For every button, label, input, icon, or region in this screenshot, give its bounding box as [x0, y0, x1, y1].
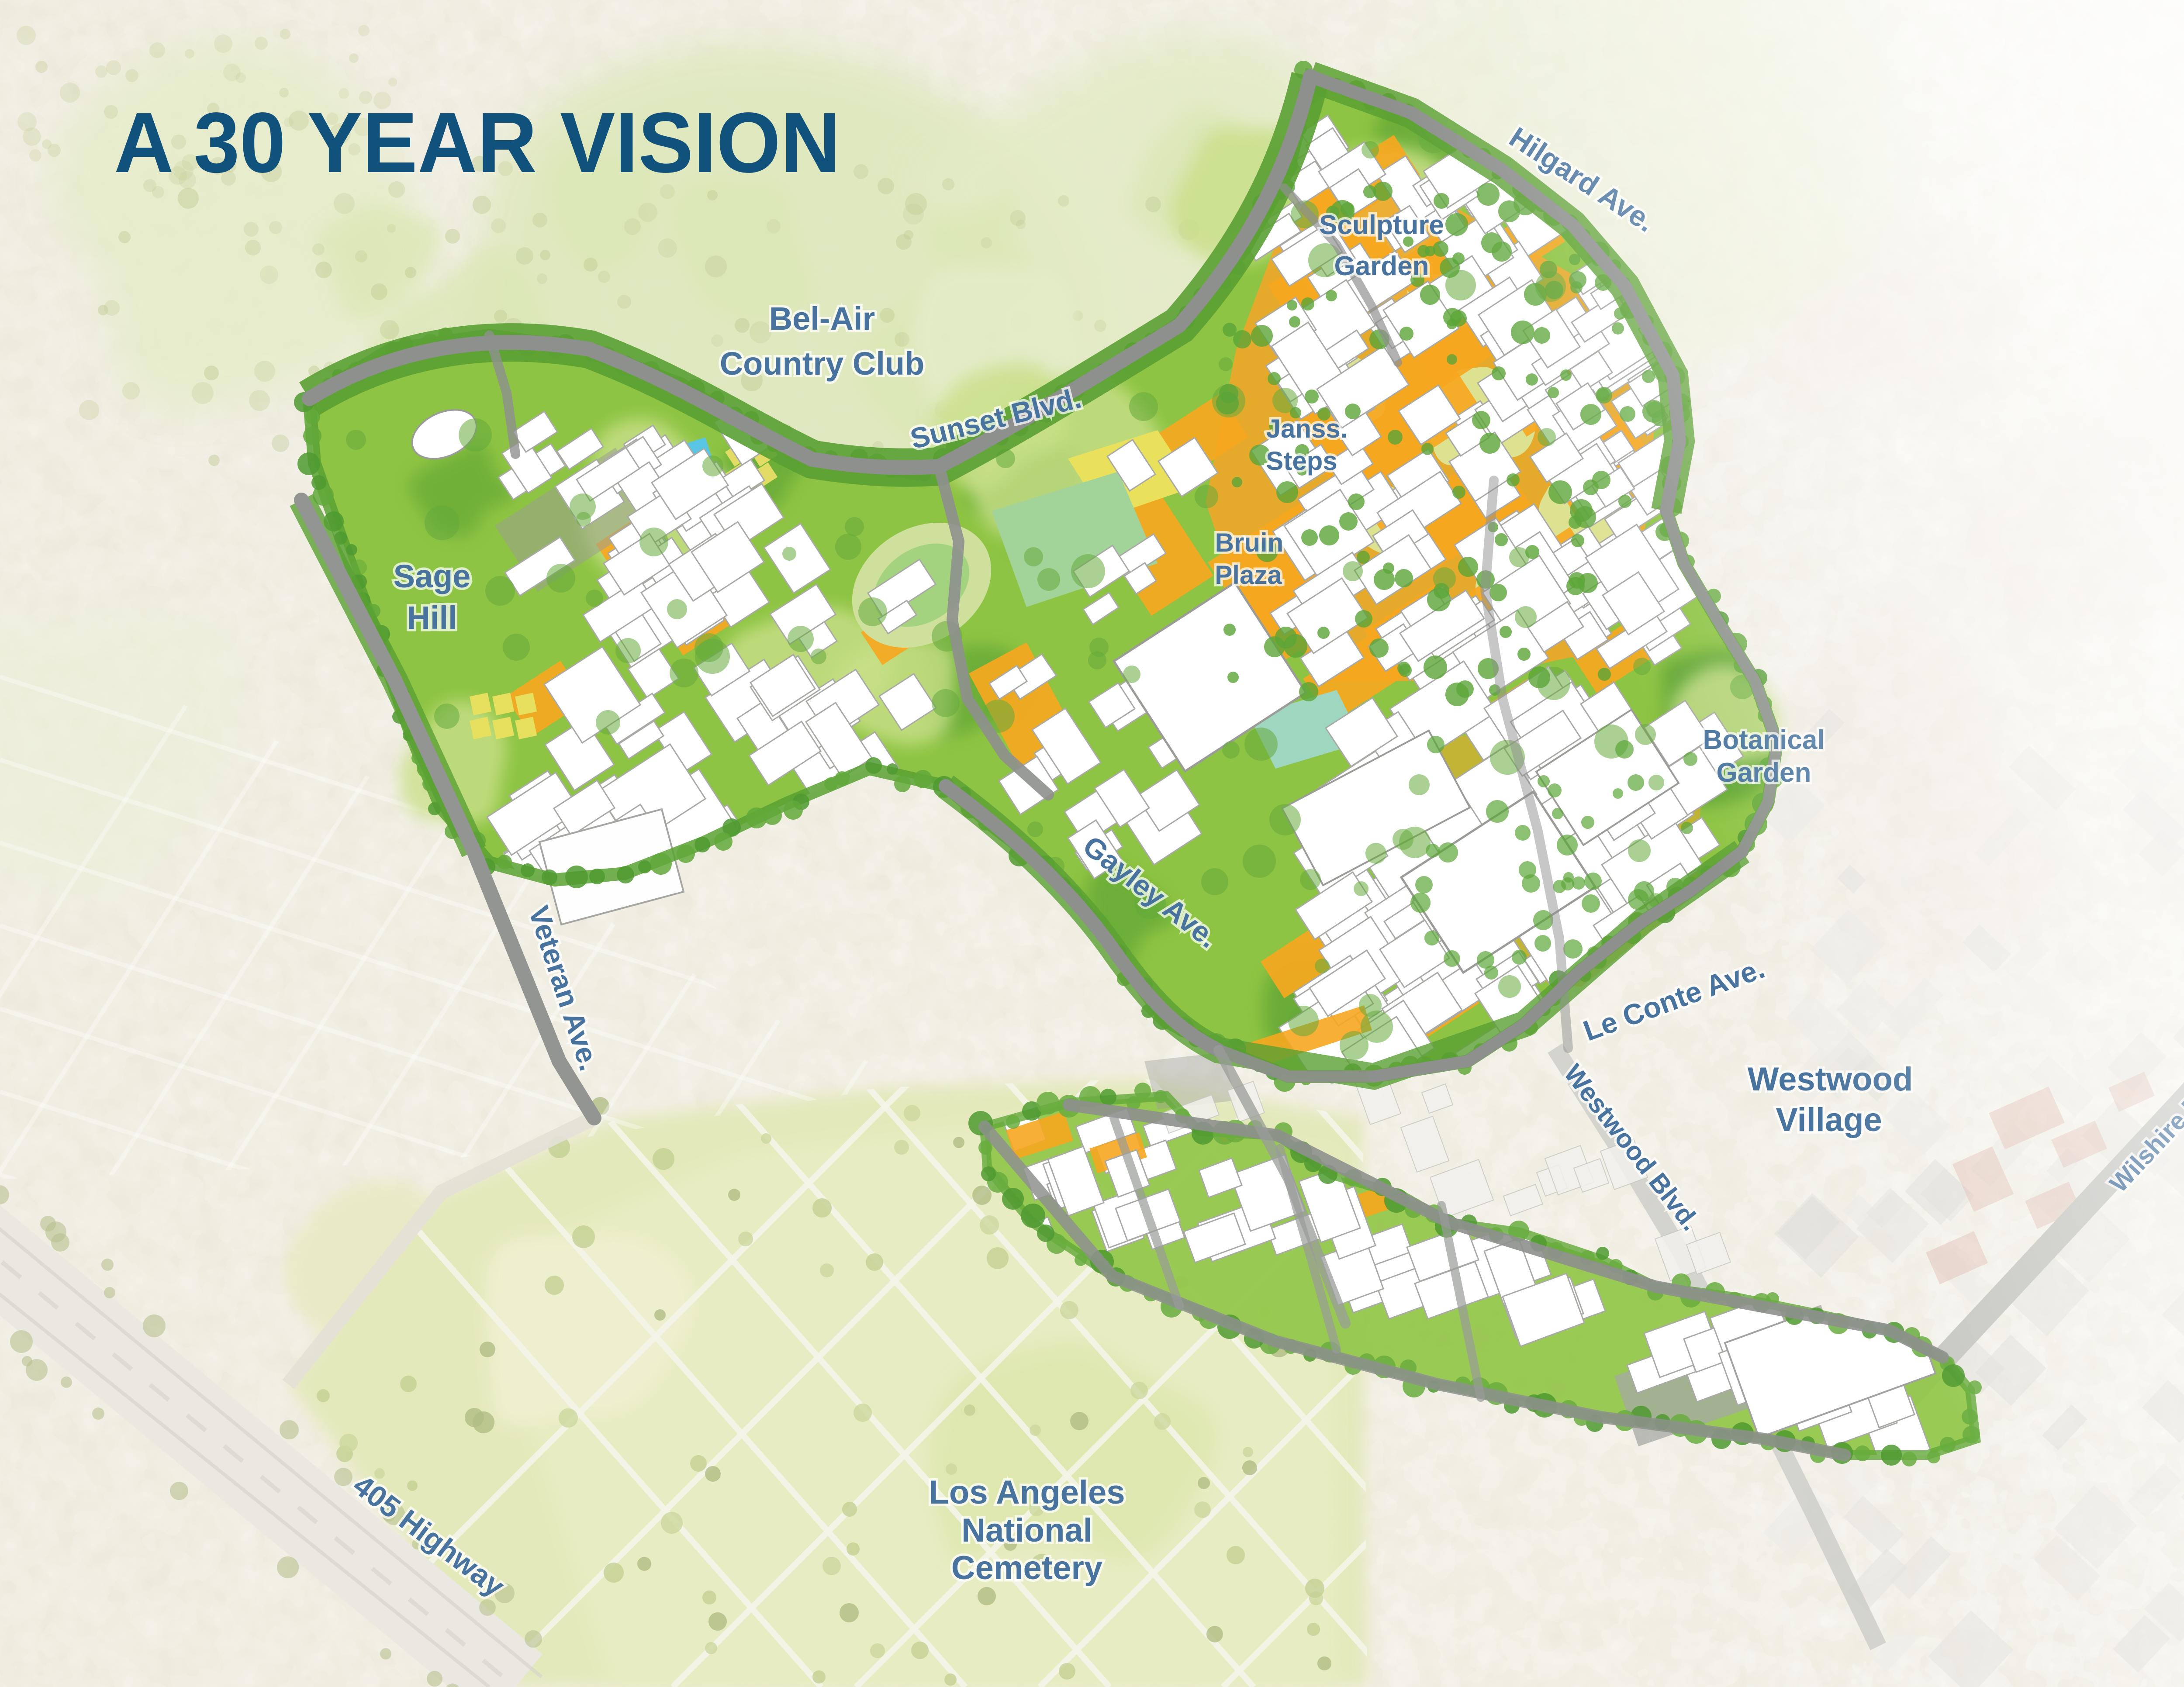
svg-text:A 30 YEAR VISION: A 30 YEAR VISION: [114, 95, 840, 190]
